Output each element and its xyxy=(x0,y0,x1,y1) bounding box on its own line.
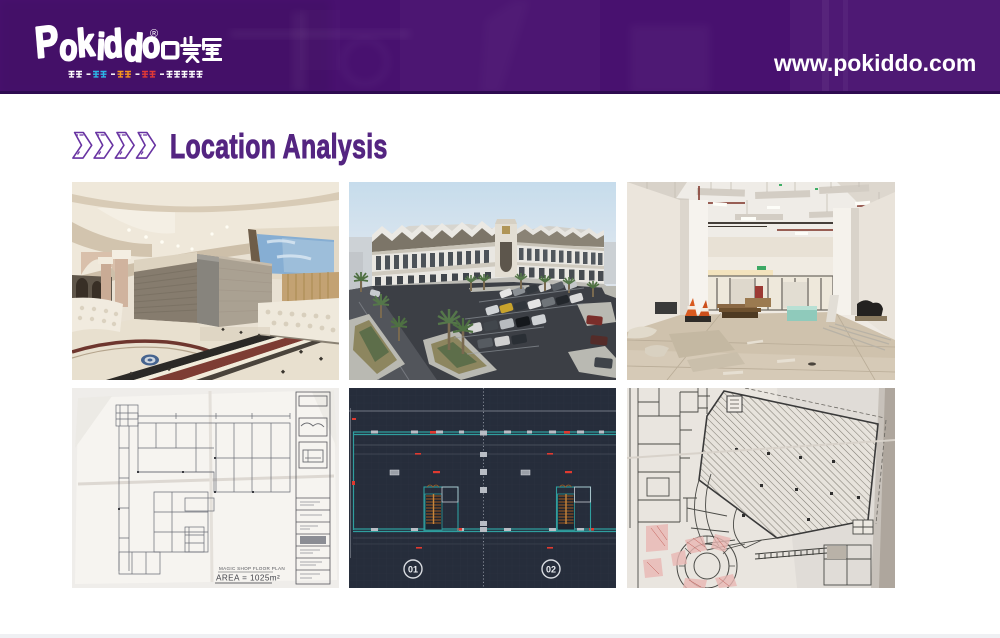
svg-text:d: d xyxy=(102,22,123,67)
svg-text:01: 01 xyxy=(408,565,418,575)
svg-text:02: 02 xyxy=(546,565,556,575)
svg-text:AREA = 1025m²: AREA = 1025m² xyxy=(216,574,280,583)
svg-text:MAGIC SHOP FLOOR PLAN: MAGIC SHOP FLOOR PLAN xyxy=(219,566,285,571)
svg-text:k: k xyxy=(76,21,97,66)
svg-text:P: P xyxy=(34,16,61,67)
svg-text:®: ® xyxy=(150,28,158,40)
